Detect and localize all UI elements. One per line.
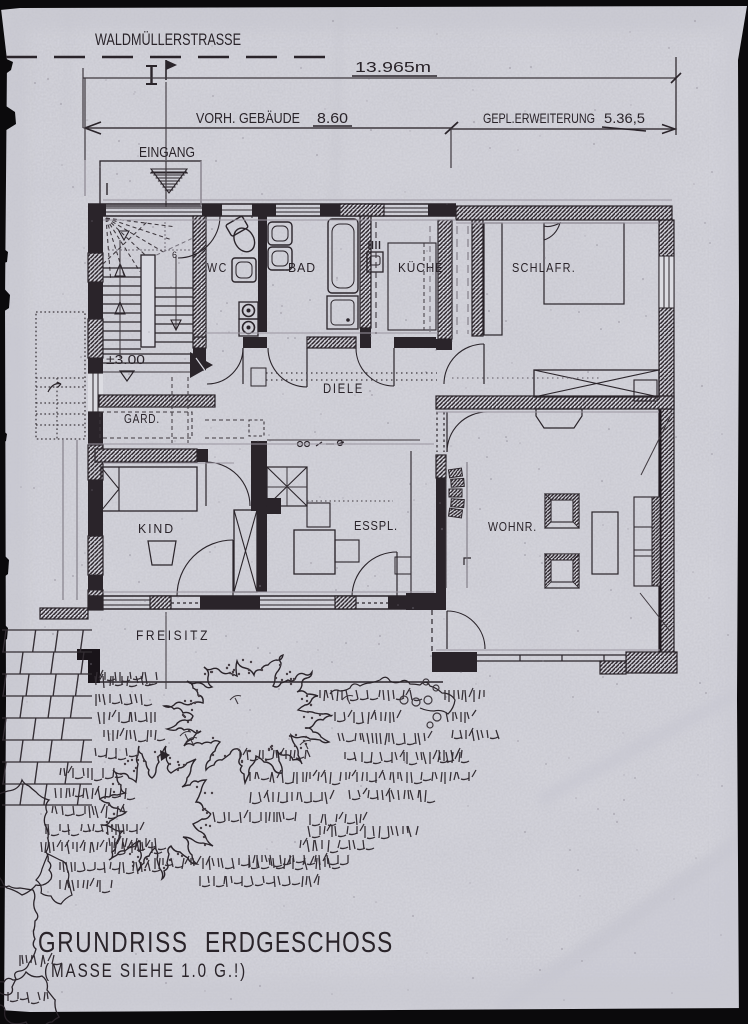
svg-text:KIND: KIND — [138, 521, 175, 536]
svg-text:8.60: 8.60 — [317, 110, 348, 127]
svg-text:ESSPL.: ESSPL. — [354, 518, 398, 533]
svg-text:5.36,5: 5.36,5 — [604, 110, 645, 126]
svg-text:13.965m: 13.965m — [355, 59, 431, 76]
svg-text:GARD.: GARD. — [124, 412, 160, 426]
svg-text:6: 6 — [172, 250, 177, 260]
svg-text:±3.00: ±3.00 — [106, 352, 145, 367]
svg-text:GEPL.ERWEITERUNG: GEPL.ERWEITERUNG — [483, 110, 595, 126]
svg-text:WALDMÜLLERSTRASSE: WALDMÜLLERSTRASSE — [95, 31, 241, 49]
svg-text:VORH. GEBÄUDE: VORH. GEBÄUDE — [196, 110, 300, 127]
svg-text:WOHNR.: WOHNR. — [488, 519, 537, 534]
svg-text:FREISITZ: FREISITZ — [136, 627, 210, 643]
svg-text:DIELE: DIELE — [323, 380, 364, 396]
svg-text:ERDGESCHOSS: ERDGESCHOSS — [205, 925, 392, 958]
svg-text:EINGANG: EINGANG — [139, 145, 195, 161]
svg-text:GRUNDRISS: GRUNDRISS — [38, 925, 187, 958]
svg-text:(MASSE SIEHE 1.0 G.!): (MASSE SIEHE 1.0 G.!) — [44, 959, 245, 981]
svg-text:WC: WC — [207, 260, 228, 275]
svg-text:KÜCHE: KÜCHE — [398, 260, 444, 275]
